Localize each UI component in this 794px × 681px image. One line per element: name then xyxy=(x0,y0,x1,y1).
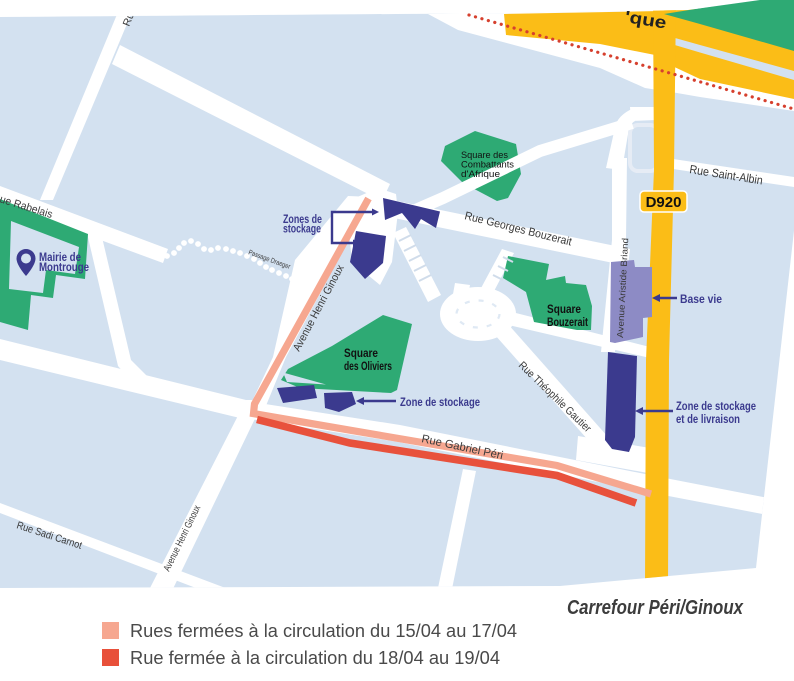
svg-text:Bouzerait: Bouzerait xyxy=(547,315,588,329)
svg-text:Montrouge: Montrouge xyxy=(39,260,89,274)
svg-text:Carrefour Péri/Ginoux: Carrefour Péri/Ginoux xyxy=(567,597,744,619)
svg-text:des Oliviers: des Oliviers xyxy=(344,359,392,373)
svg-text:Square: Square xyxy=(547,302,581,316)
svg-text:Zone de stockage: Zone de stockage xyxy=(676,401,756,413)
svg-text:Rues fermées à la circulation: Rues fermées à la circulation du 15/04 a… xyxy=(130,620,517,641)
svg-text:D920: D920 xyxy=(646,194,682,211)
svg-text:Zone de stockage: Zone de stockage xyxy=(400,397,480,409)
svg-text:stockage: stockage xyxy=(283,222,321,236)
svg-text:d'Afrique: d'Afrique xyxy=(461,169,500,180)
svg-text:Rue fermée à la circulation du: Rue fermée à la circulation du 18/04 au … xyxy=(130,647,500,668)
svg-text:Square: Square xyxy=(344,346,378,360)
svg-text:et de livraison: et de livraison xyxy=(676,414,740,426)
svg-text:Base vie: Base vie xyxy=(680,292,722,306)
